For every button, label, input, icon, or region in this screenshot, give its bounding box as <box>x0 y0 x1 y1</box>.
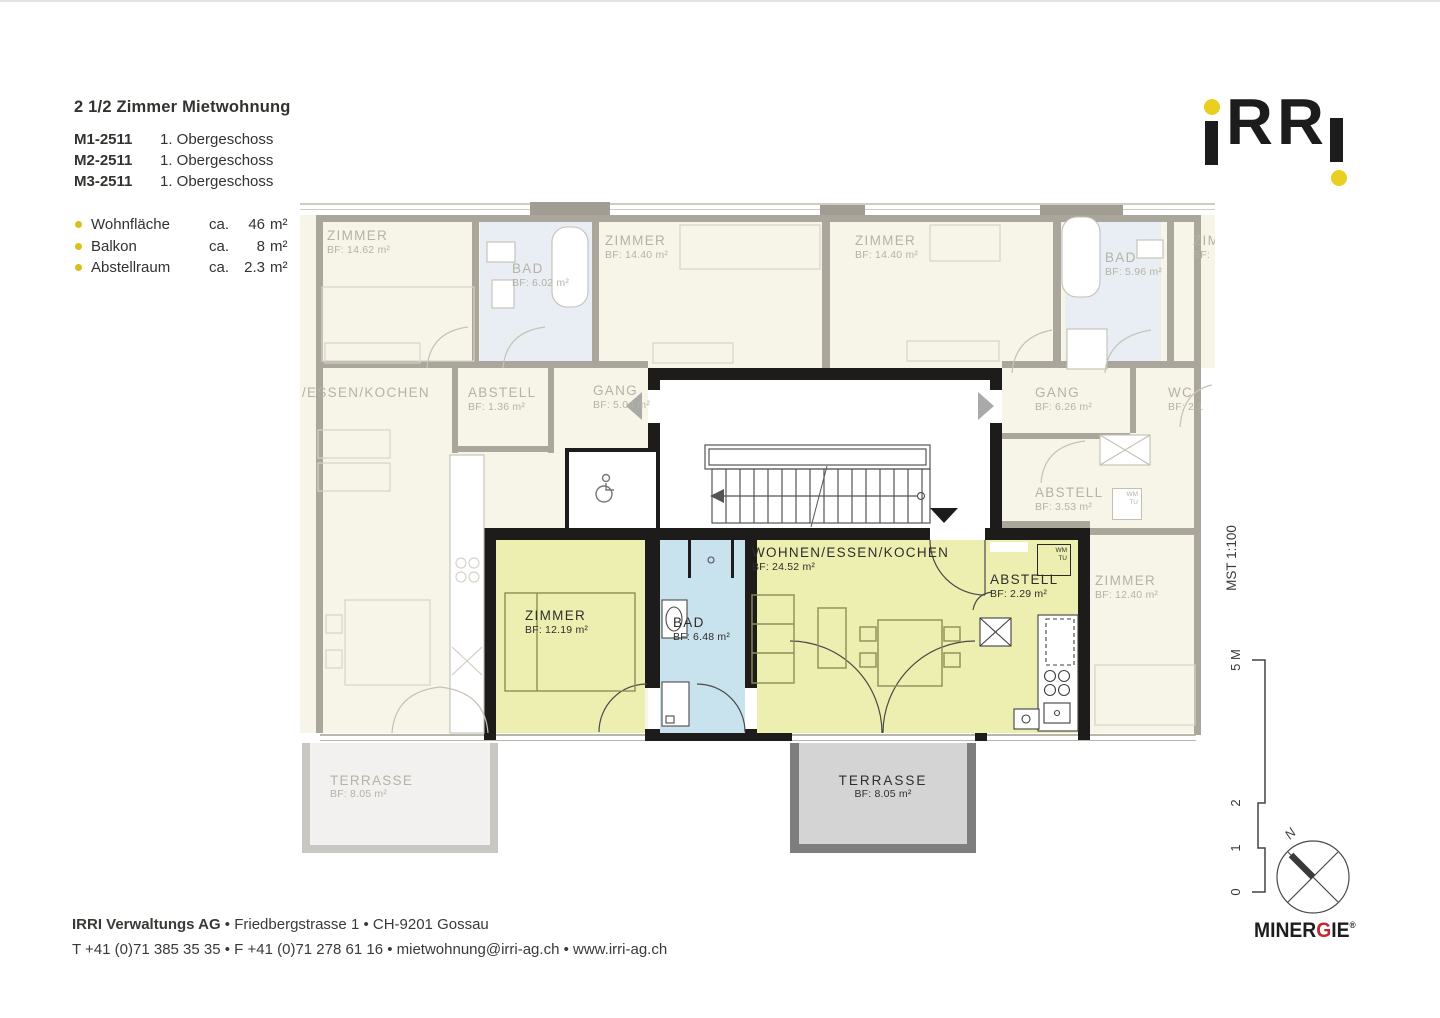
scale-tick: 5 M <box>1228 649 1243 671</box>
bg-room-label: BAD BF: 5.96 m² <box>1105 250 1162 278</box>
bullet-icon <box>75 221 82 228</box>
spec-ca: ca. <box>209 214 239 236</box>
room-name: ZIMMER <box>525 608 588 624</box>
bg-room-label: ZIMMER BF: <box>1193 233 1215 261</box>
scale-tick: 1 <box>1228 844 1243 851</box>
scale-tick: 0 <box>1228 888 1243 895</box>
room-area: BF: 5.04 m² <box>593 399 650 411</box>
room-name: ZIMMER <box>327 228 390 244</box>
room-area: BF: 24.52 m² <box>752 561 949 573</box>
room-area: BF: 14.40 m² <box>605 249 668 261</box>
room-name: WOHNEN/ESSEN/KOCHEN <box>752 545 949 561</box>
floor-plan: TERRASSE BF: 8.05 m² TERRASSE BF: 8.05 m… <box>300 195 1215 885</box>
scale-and-compass: MST 1:100 0 1 2 5 M N <box>1180 480 1380 940</box>
logo-i-stem <box>1330 118 1343 162</box>
room-name: GANG <box>593 383 650 399</box>
minergie-text: MINER <box>1254 919 1316 942</box>
room-label-bad: BAD BF: 6.48 m² <box>673 615 730 643</box>
door-arrow-icon <box>978 392 994 420</box>
room-area: BF: 2.29 m² <box>990 588 1058 600</box>
bg-room-label: ABSTELL BF: 1.36 m² <box>468 385 536 413</box>
scale-label: MST 1:100 <box>1224 525 1239 591</box>
bg-room-label: ZIMMER BF: 14.40 m² <box>855 233 918 261</box>
spec-row: Balkon ca. 8 m² <box>74 236 291 258</box>
spec-ca: ca. <box>209 236 239 258</box>
room-name: ABSTELL <box>468 385 536 401</box>
footer: IRRI Verwaltungs AG • Friedbergstrasse 1… <box>72 912 667 962</box>
unit-row: M1-2511 1. Obergeschoss <box>74 129 291 150</box>
room-area: BF: 5.96 m² <box>1105 266 1162 278</box>
room-area: BF: 6.26 m² <box>1035 401 1092 413</box>
spec-row: Abstellraum ca. 2.3 m² <box>74 257 291 279</box>
unit-floor: 1. Obergeschoss <box>160 171 273 192</box>
footer-line1: IRRI Verwaltungs AG • Friedbergstrasse 1… <box>72 912 667 937</box>
spec-label: Abstellraum <box>91 257 209 279</box>
room-area: BF: 6.02 m² <box>512 277 569 289</box>
room-name: WC <box>1168 385 1203 401</box>
room-name: BAD <box>673 615 730 631</box>
spec-list: Wohnfläche ca. 46 m² Balkon ca. 8 m² Abs… <box>74 214 291 279</box>
room-name: BAD <box>1105 250 1162 266</box>
scale-bar <box>1252 660 1265 892</box>
bg-room-label: ZIMMER BF: 14.62 m² <box>327 228 390 256</box>
spec-label: Balkon <box>91 236 209 258</box>
spec-unit: m² <box>270 257 288 279</box>
unit-list: M1-2511 1. Obergeschoss M2-2511 1. Oberg… <box>74 129 291 192</box>
bg-room-label: /ESSEN/KOCHEN <box>302 385 430 401</box>
room-name: /ESSEN/KOCHEN <box>302 385 430 401</box>
unit-floor: 1. Obergeschoss <box>160 129 273 150</box>
bullet-icon <box>75 264 82 271</box>
spec-value: 2.3 <box>239 257 265 279</box>
stairs <box>705 445 930 527</box>
company-address: • Friedbergstrasse 1 • CH-9201 Gossau <box>221 916 489 933</box>
logo-i-stem <box>1205 121 1218 165</box>
compass-icon: N <box>1277 824 1349 913</box>
minergie-text: IE <box>1331 919 1349 942</box>
minergie-g: G <box>1316 919 1331 942</box>
unit-code: M3-2511 <box>74 171 160 192</box>
north-label: N <box>1282 824 1300 842</box>
unit-code: M1-2511 <box>74 129 160 150</box>
plan-drawing-layer <box>300 195 1215 885</box>
irri-logo: RR <box>1195 90 1355 200</box>
room-name: ZIMMER <box>605 233 668 249</box>
company-name: IRRI Verwaltungs AG <box>72 916 221 933</box>
room-area: BF: 14.62 m² <box>327 244 390 256</box>
logo-dot-bottom-icon <box>1331 170 1347 186</box>
floorplan-page: 2 1/2 Zimmer Mietwohnung M1-2511 1. Ober… <box>0 0 1440 1018</box>
spec-label: Wohnfläche <box>91 214 209 236</box>
room-area: BF: 3.53 m² <box>1035 501 1103 513</box>
bg-room-label: ZIMMER BF: 12.40 m² <box>1095 573 1158 601</box>
room-area: BF: 12.19 m² <box>525 624 588 636</box>
registered-mark: ® <box>1350 920 1356 930</box>
unit-code: M2-2511 <box>74 150 160 171</box>
entry-arrow-icon <box>930 508 958 523</box>
elevator-symbol-icon <box>596 475 614 503</box>
room-label-zimmer: ZIMMER BF: 12.19 m² <box>525 608 588 636</box>
bg-room-label: BAD BF: 6.02 m² <box>512 261 569 289</box>
logo-dot-top-icon <box>1204 99 1220 115</box>
spec-value: 8 <box>239 236 265 258</box>
bg-room-label: GANG BF: 6.26 m² <box>1035 385 1092 413</box>
room-area: BF: <box>1193 249 1215 261</box>
bg-room-label: GANG BF: 5.04 m² <box>593 383 650 411</box>
room-name: ABSTELL <box>990 572 1058 588</box>
footer-line2: T +41 (0)71 385 35 35 • F +41 (0)71 278 … <box>72 937 667 962</box>
spec-unit: m² <box>270 236 288 258</box>
room-name: ABSTELL <box>1035 485 1103 501</box>
spec-value: 46 <box>239 214 265 236</box>
room-name: BAD <box>512 261 569 277</box>
room-label-abstell: ABSTELL BF: 2.29 m² <box>990 572 1058 600</box>
spec-ca: ca. <box>209 257 239 279</box>
kitchen-fixtures <box>980 615 1078 731</box>
page-top-edge <box>0 0 1440 2</box>
room-area: BF: 14.40 m² <box>855 249 918 261</box>
room-area: BF: 2.1 <box>1168 401 1203 413</box>
unit-row: M2-2511 1. Obergeschoss <box>74 150 291 171</box>
unit-row: M3-2511 1. Obergeschoss <box>74 171 291 192</box>
spec-row: Wohnfläche ca. 46 m² <box>74 214 291 236</box>
bg-room-label: ABSTELL BF: 3.53 m² <box>1035 485 1103 513</box>
room-area: BF: 12.40 m² <box>1095 589 1158 601</box>
bullet-icon <box>75 243 82 250</box>
room-name: ZIMMER <box>855 233 918 249</box>
room-name: ZIMMER <box>1193 233 1215 249</box>
bg-room-label: ZIMMER BF: 14.40 m² <box>605 233 668 261</box>
room-label-wohnen: WOHNEN/ESSEN/KOCHEN BF: 24.52 m² <box>752 545 949 573</box>
room-area: BF: 6.48 m² <box>673 631 730 643</box>
logo-letters: RR <box>1226 98 1328 145</box>
minergie-logo: MINERGIE® <box>1254 919 1356 943</box>
room-area: BF: 1.36 m² <box>468 401 536 413</box>
room-name: GANG <box>1035 385 1092 401</box>
bg-room-label: WC BF: 2.1 <box>1168 385 1203 413</box>
scale-tick: 2 <box>1228 799 1243 806</box>
page-title: 2 1/2 Zimmer Mietwohnung <box>74 98 291 117</box>
unit-floor: 1. Obergeschoss <box>160 150 273 171</box>
room-name: ZIMMER <box>1095 573 1158 589</box>
spec-unit: m² <box>270 214 288 236</box>
header: 2 1/2 Zimmer Mietwohnung M1-2511 1. Ober… <box>74 98 291 279</box>
